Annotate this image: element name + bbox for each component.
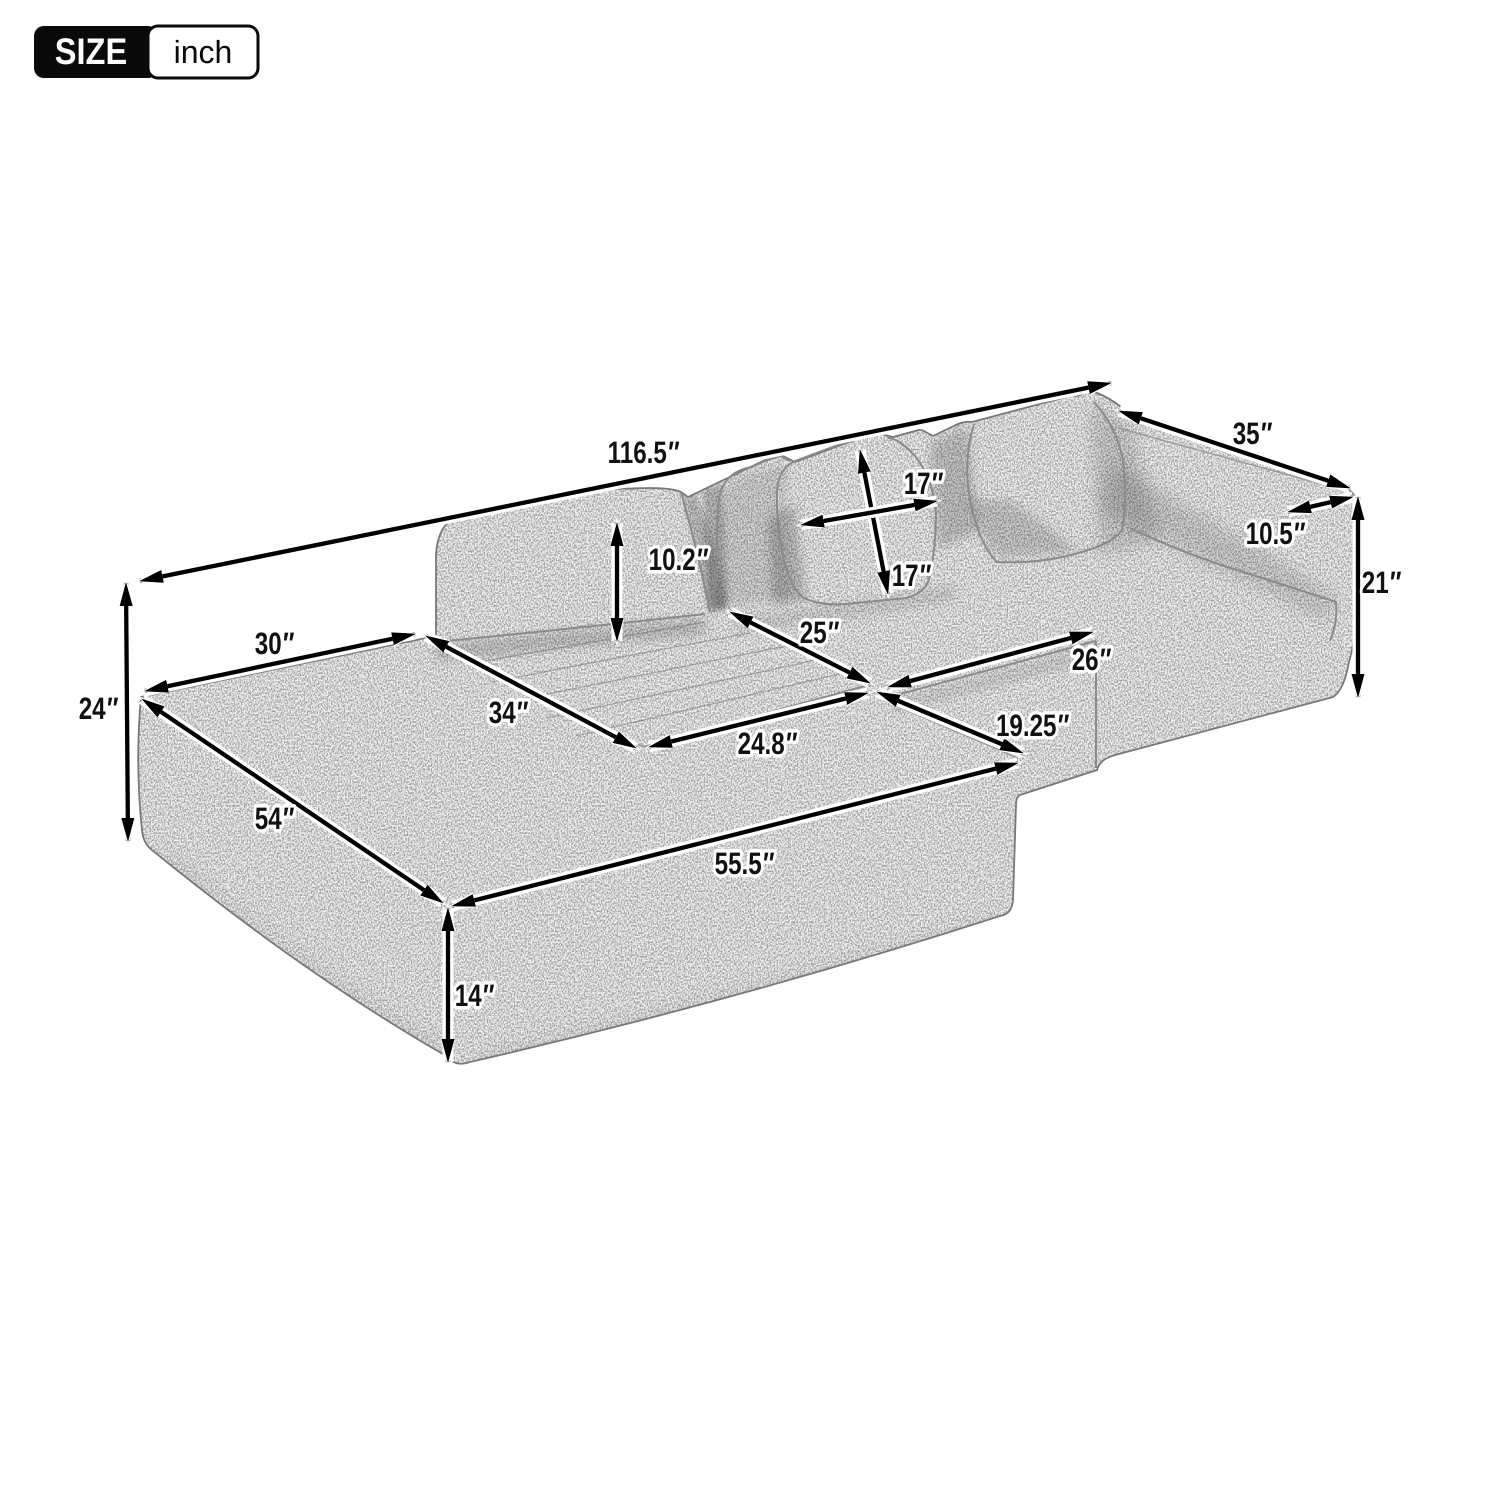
svg-text:17″: 17″ <box>892 558 931 593</box>
svg-text:19.25″: 19.25″ <box>996 708 1069 743</box>
svg-text:17″: 17″ <box>904 466 943 501</box>
svg-text:10.5″: 10.5″ <box>1246 516 1306 551</box>
svg-text:21″: 21″ <box>1362 565 1401 600</box>
svg-text:30″: 30″ <box>255 626 294 661</box>
svg-text:54″: 54″ <box>255 801 294 836</box>
svg-text:34″: 34″ <box>489 695 528 730</box>
svg-text:24″: 24″ <box>79 691 118 726</box>
svg-text:26″: 26″ <box>1072 642 1111 677</box>
svg-text:55.5″: 55.5″ <box>715 846 775 881</box>
svg-text:10.2″: 10.2″ <box>649 542 709 577</box>
svg-text:116.5″: 116.5″ <box>608 435 680 470</box>
svg-text:35″: 35″ <box>1233 416 1272 451</box>
svg-text:25″: 25″ <box>800 615 839 650</box>
svg-text:inch: inch <box>174 34 233 70</box>
svg-text:24.8″: 24.8″ <box>738 726 798 761</box>
svg-text:SIZE: SIZE <box>55 31 127 72</box>
svg-text:14″: 14″ <box>455 978 494 1013</box>
